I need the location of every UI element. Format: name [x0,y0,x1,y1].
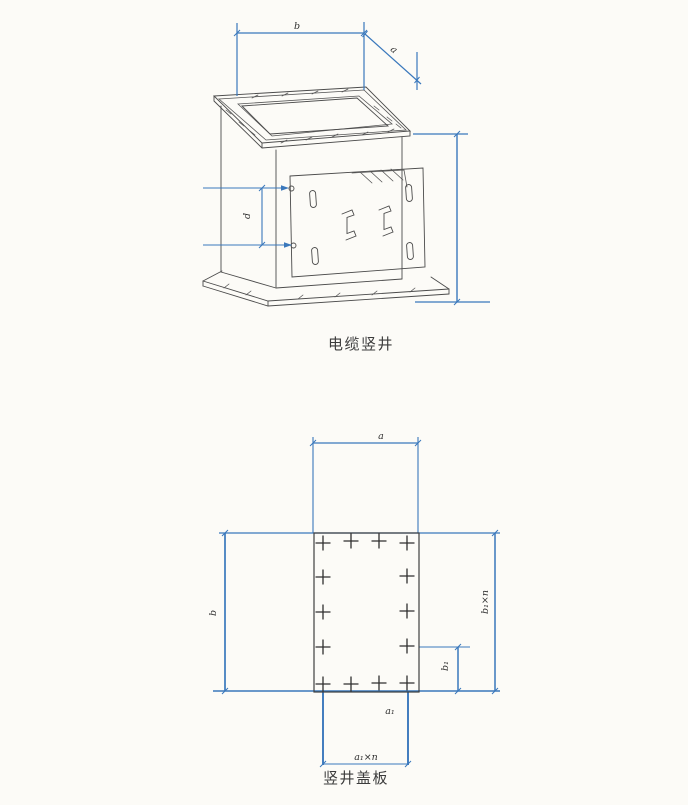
figure1-caption: 电缆竖井 [328,336,394,353]
dim-label-d: d [242,213,253,219]
bottom-flange [203,271,449,306]
bolt-cross-marks [316,534,415,692]
bottom-flange-tick-marks [224,284,415,299]
technical-drawing-canvas: b a d 电缆竖井 a [0,0,688,805]
dim-label-a2: a [378,431,384,442]
plate-slots [309,184,413,264]
cable-shaft-dimensions: b a d [203,21,490,305]
dim-label-a1n: a₁×n [354,752,378,763]
cover-plate-dimensions: a b b₁×n b₁ a₁ a₁×n [208,431,500,767]
figure2-caption: 竖井盖板 [323,769,389,787]
dim-label-a1: a₁ [385,706,394,717]
dim-label-a: a [388,44,400,56]
cable-shaft-isometric-drawing [203,87,449,306]
plate-handles [342,206,393,240]
figure-cable-shaft: b a d 电缆竖井 [203,21,490,353]
dim-label-b1: b₁ [440,661,451,671]
scanned-drawing-page: b a d 电缆竖井 a [0,0,688,805]
figure-cover-plate-plan: a b b₁×n b₁ a₁ a₁×n [208,431,500,787]
dim-label-b: b [294,21,300,32]
dim-label-b1n: b₁×n [480,590,491,614]
cover-plate-outline [314,533,419,692]
dim-label-b2: b [208,610,219,616]
cover-plate [289,168,425,277]
